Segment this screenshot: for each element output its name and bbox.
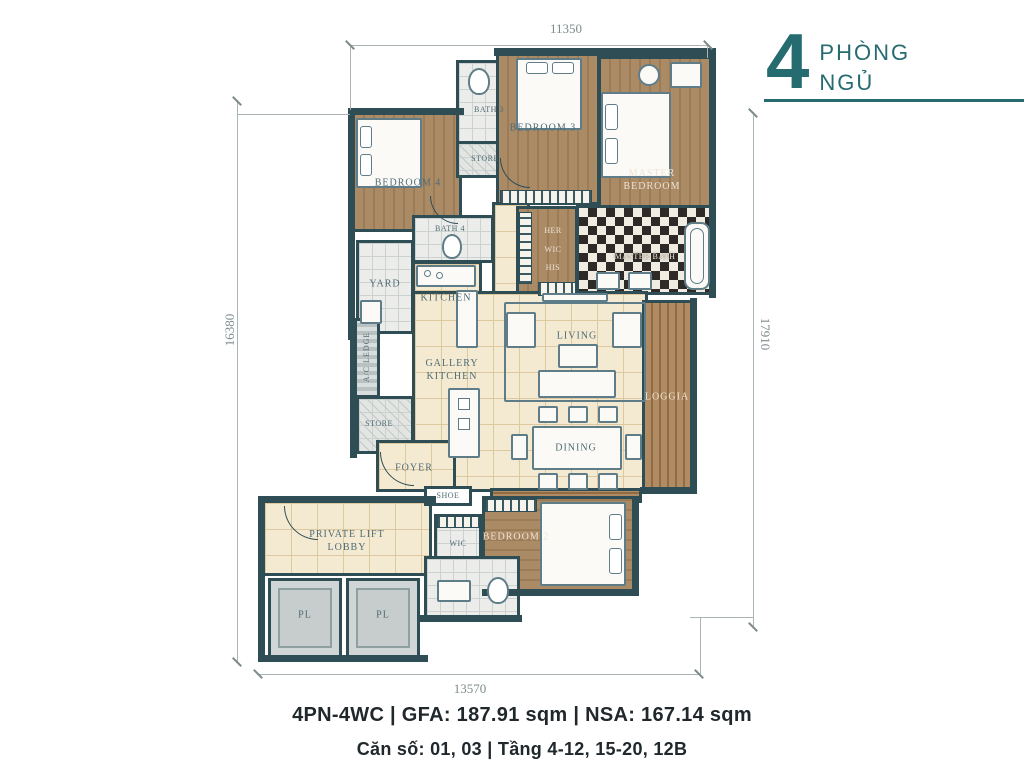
room-label-pl-right: PL	[376, 609, 390, 622]
wall-segment	[258, 655, 428, 662]
bedroom-count-words: PHÒNG NGỦ	[819, 38, 910, 98]
floor-plan-page: BEDROOM 4 BATH 3 STORE BEDROOM 3 MASTER …	[0, 0, 1024, 771]
toilet-icon	[487, 577, 509, 604]
wall-segment	[258, 496, 265, 662]
chair-icon	[538, 473, 558, 490]
badge-divider-line	[764, 99, 1024, 102]
room-label-foyer: FOYER	[395, 462, 433, 475]
toilet-icon	[468, 68, 490, 95]
bed-icon	[540, 502, 626, 586]
dimension-bottom: 13570	[454, 681, 487, 697]
washer-icon	[360, 300, 382, 324]
dimension-left: 16380	[222, 314, 238, 347]
toilet-icon	[442, 234, 462, 259]
armchair-icon	[670, 62, 702, 88]
room-label-kitchen: KITCHEN	[421, 292, 472, 305]
bed-icon	[601, 92, 671, 178]
stove-icon	[424, 270, 431, 277]
sink-icon	[596, 272, 620, 290]
extension-line	[707, 46, 708, 58]
dimension-line-bottom	[257, 674, 700, 675]
room-label-living: LIVING	[557, 330, 597, 343]
room-label-wic-his: HIS	[546, 263, 560, 273]
room-label-shoe: SHOE	[437, 491, 460, 501]
dimension-line-top	[350, 45, 708, 46]
chair-icon	[511, 434, 528, 460]
bed-icon	[516, 58, 582, 130]
armchair-icon	[506, 312, 536, 348]
wardrobe-icon	[485, 499, 537, 512]
room-label-bath4: BATH 4	[435, 224, 465, 234]
dimension-line-left	[237, 100, 238, 663]
room-label-store-bottom: STORE	[365, 419, 393, 429]
wall-segment	[494, 48, 716, 56]
tv-console-icon	[542, 293, 608, 302]
sink-icon	[458, 418, 470, 430]
room-label-wic-her: HER	[544, 226, 562, 236]
room-label-master-bedroom: MASTER BEDROOM	[609, 167, 695, 193]
room-label-bedroom2: BEDROOM 2	[483, 531, 550, 544]
room-label-yard: YARD	[369, 278, 400, 291]
side-table-icon	[638, 64, 660, 86]
sink-icon	[437, 580, 471, 602]
bathtub-icon	[684, 222, 710, 290]
wardrobe-icon	[437, 516, 480, 528]
room-label-dining: DINING	[555, 442, 597, 455]
extension-line	[238, 114, 350, 115]
wall-segment	[350, 336, 357, 458]
unit-location-line: Căn số: 01, 03 | Tầng 4-12, 15-20, 12B	[20, 739, 1024, 760]
wall-segment	[258, 496, 436, 503]
room-label-loggia: LOGGIA	[645, 391, 689, 404]
extension-line	[350, 46, 351, 110]
badge-word1: PHÒNG	[819, 38, 910, 68]
sofa-icon	[538, 370, 616, 398]
wall-segment	[348, 108, 464, 115]
extension-line	[700, 618, 701, 674]
badge-word2: NGỦ	[819, 68, 910, 98]
room-label-wic-wic: WIC	[544, 245, 561, 255]
dimension-line-right	[753, 112, 754, 628]
room-label-bath3: BATH 3	[474, 105, 504, 115]
room-label-pl-left: PL	[298, 609, 312, 622]
dimension-right: 17910	[757, 318, 773, 351]
coffee-table-icon	[558, 344, 598, 368]
room-label-bedroom4: BEDROOM 4	[375, 177, 442, 190]
wall-segment	[348, 108, 355, 340]
chair-icon	[568, 473, 588, 490]
room-label-ac-ledge: A/C LEDGE	[362, 332, 372, 383]
chair-icon	[598, 406, 618, 423]
room-label-store-top: STORE	[471, 154, 499, 164]
sink-icon	[628, 272, 652, 290]
chair-icon	[625, 434, 642, 460]
chair-icon	[538, 406, 558, 423]
wardrobe-icon	[519, 212, 532, 284]
wall-segment	[420, 615, 522, 622]
bedroom-count-badge: 4 PHÒNG NGỦ	[766, 26, 910, 98]
bedroom-count-number: 4	[766, 26, 809, 98]
wardrobe-icon	[500, 190, 592, 204]
unit-summary-line: 4PN-4WC | GFA: 187.91 sqm | NSA: 167.14 …	[20, 704, 1024, 727]
wall-segment	[709, 48, 716, 298]
wall-segment	[632, 496, 639, 596]
chair-icon	[568, 406, 588, 423]
armchair-icon	[612, 312, 642, 348]
room-label-bedroom3: BEDROOM 3	[510, 122, 577, 135]
room-label-wic2: WIC	[449, 539, 466, 549]
room-label-private-lift-lobby: PRIVATE LIFT LOBBY	[292, 528, 402, 554]
room-label-gallery-kitchen: GALLERY KITCHEN	[406, 357, 498, 383]
wall-segment	[690, 298, 697, 494]
wall-segment	[640, 487, 697, 494]
stove-icon	[436, 272, 443, 279]
room-label-master-bath: MASTER BATH	[613, 252, 677, 262]
dimension-top: 11350	[550, 21, 582, 37]
sink-icon	[458, 398, 470, 410]
chair-icon	[598, 473, 618, 490]
